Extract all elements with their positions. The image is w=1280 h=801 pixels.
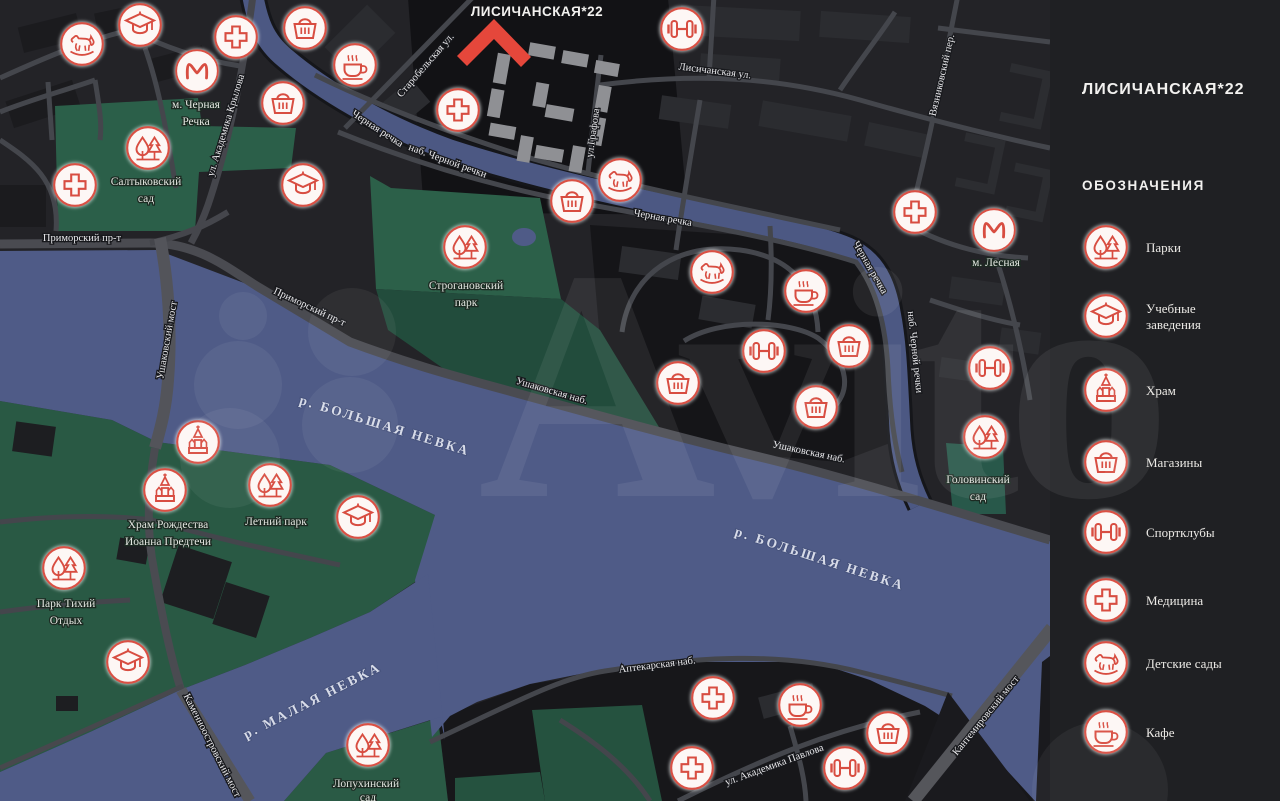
svg-text:сад: сад [360,792,376,801]
svg-text:ОБОЗНАЧЕНИЯ: ОБОЗНАЧЕНИЯ [1082,178,1205,193]
svg-text:Медицина: Медицина [1146,593,1203,608]
svg-text:парк: парк [455,297,478,309]
svg-text:Лопухинский: Лопухинский [333,778,399,790]
svg-text:Летний парк: Летний парк [245,516,307,528]
svg-text:Иоанна Предтечи: Иоанна Предтечи [125,536,211,548]
svg-text:Приморский пр-т: Приморский пр-т [43,233,122,244]
svg-text:сад: сад [138,193,154,205]
svg-text:ЛИСИЧАНСКАЯ*22: ЛИСИЧАНСКАЯ*22 [471,4,603,19]
svg-text:ЛИСИЧАНСКАЯ*22: ЛИСИЧАНСКАЯ*22 [1082,81,1245,98]
svg-text:Салтыковский: Салтыковский [111,176,181,188]
svg-text:Кафе: Кафе [1146,725,1175,740]
svg-text:Детские сады: Детские сады [1146,656,1222,671]
svg-text:Avito: Avito [478,203,1161,568]
svg-text:Отдых: Отдых [50,615,83,627]
svg-text:Парк Тихий: Парк Тихий [37,598,96,610]
svg-text:Храм Рождества: Храм Рождества [128,519,209,531]
svg-text:Речка: Речка [182,116,209,128]
svg-text:м. Черная: м. Черная [172,99,221,111]
